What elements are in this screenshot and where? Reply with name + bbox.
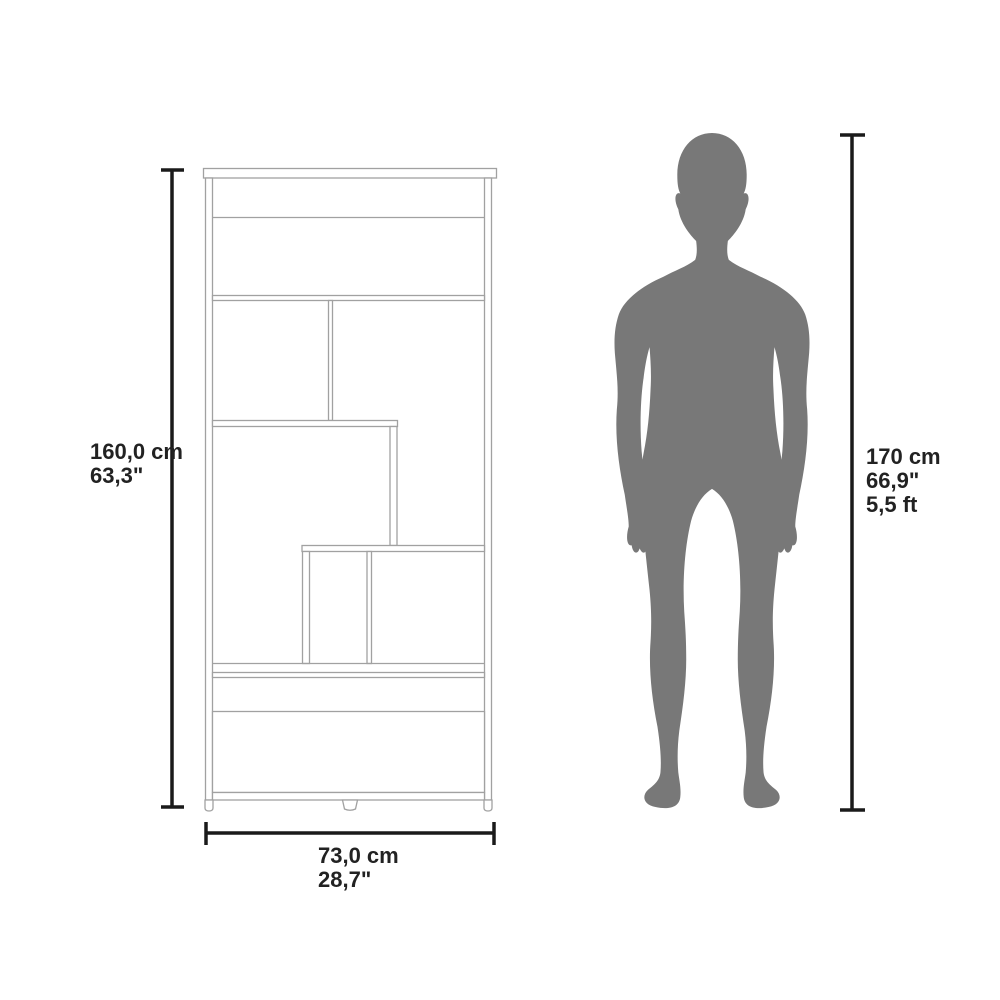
bookcase-center-foot [343,800,358,810]
bookcase-height-cm: 160,0 cm [90,440,183,464]
bookcase-top-board [204,169,497,179]
person-height-label: 170 cm 66,9" 5,5 ft [866,445,941,517]
bookcase-divider-2 [390,427,397,546]
bookcase-right-panel [485,178,492,800]
bookcase-shelf-3 [302,546,485,552]
bookcase-shelf-2 [213,421,398,427]
bookcase-right-foot [484,800,492,811]
bookcase-divider-3 [303,552,310,664]
bookcase-width-label: 73,0 cm 28,7" [318,844,399,892]
bookcase-divider-4 [367,552,372,664]
person-height-inches: 66,9" [866,469,941,493]
bookcase-width-inches: 28,7" [318,868,399,892]
bookcase-divider-1 [329,301,333,421]
bookcase-drawer-front [213,712,485,793]
bookcase-height-label: 160,0 cm 63,3" [90,440,183,488]
bookcase-height-inches: 63,3" [90,464,183,488]
bookcase-lower-board [213,673,485,678]
bookcase-left-foot [205,800,213,811]
bookcase-drawing [195,160,505,820]
bookcase-left-panel [206,178,213,800]
bookcase-bottom-board [213,793,485,801]
bookcase-height-dimension-line [155,160,195,820]
person-silhouette [598,130,826,814]
bookcase-width-cm: 73,0 cm [318,844,399,868]
person-height-feet: 5,5 ft [866,493,941,517]
person-height-cm: 170 cm [866,445,941,469]
bookcase-shelf-1 [213,296,485,301]
dimension-diagram: 160,0 cm 63,3" 170 cm 66,9" 5,5 ft 73,0 … [0,0,1000,1000]
